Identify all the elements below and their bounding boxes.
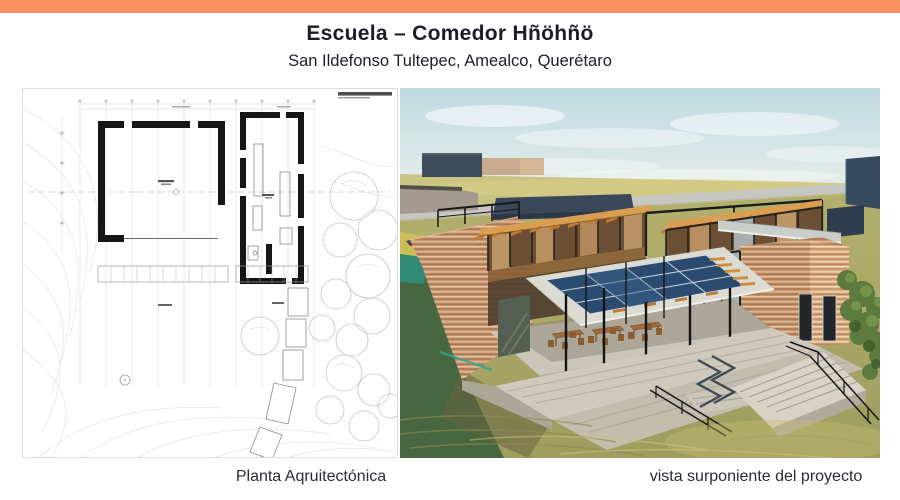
window-slot <box>823 296 836 341</box>
floor-plan-figure <box>22 88 398 458</box>
slide-header: Escuela – Comedor Hñöhñö San Ildefonso T… <box>0 13 900 71</box>
floor-plan-drawing <box>22 88 398 458</box>
render-caption: vista surponiente del proyecto <box>650 468 863 486</box>
window-slot <box>799 294 812 341</box>
slide: Escuela – Comedor Hñöhñö San Ildefonso T… <box>0 0 900 500</box>
plan-caption: Planta Aqruitectónica <box>236 468 386 486</box>
render-image <box>400 88 880 458</box>
site-symbol-dot <box>124 379 126 381</box>
accent-bar <box>0 0 900 13</box>
left-window <box>498 295 530 357</box>
page-subtitle: San Ildefonso Tultepec, Amealco, Queréta… <box>0 52 900 71</box>
page-title: Escuela – Comedor Hñöhñö <box>0 22 900 46</box>
render-figure <box>400 88 880 458</box>
